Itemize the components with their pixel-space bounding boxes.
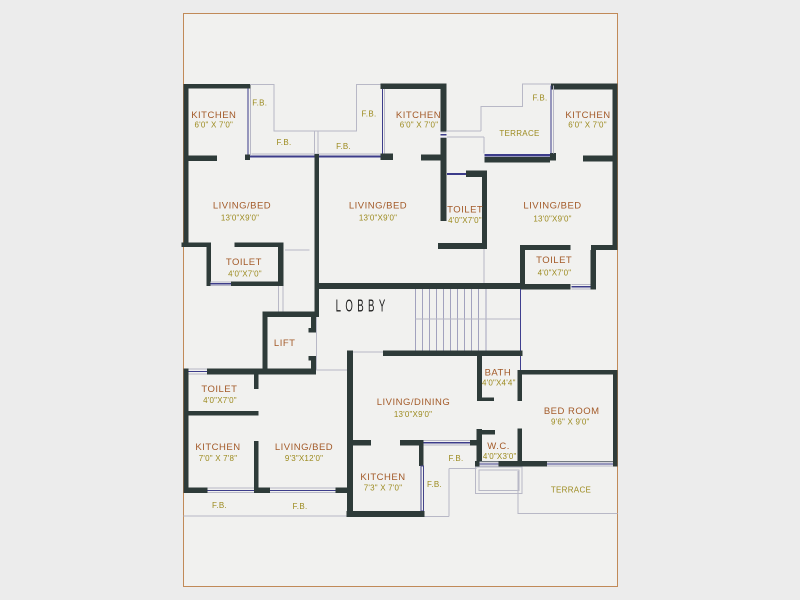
svg-text:13'0"X9'0": 13'0"X9'0"	[394, 410, 432, 419]
svg-text:KITCHEN: KITCHEN	[360, 472, 405, 483]
svg-text:TOILET: TOILET	[201, 384, 237, 395]
svg-text:TOILET: TOILET	[536, 255, 572, 266]
svg-text:6'0" X 7'0": 6'0" X 7'0"	[568, 121, 607, 130]
svg-text:9'6" X 9'0": 9'6" X 9'0"	[551, 417, 590, 426]
svg-text:13'0"X9'0": 13'0"X9'0"	[359, 214, 397, 223]
svg-text:F.B.: F.B.	[533, 94, 548, 103]
svg-text:4'0"X3'0": 4'0"X3'0"	[483, 452, 517, 461]
svg-text:F.B.: F.B.	[277, 138, 292, 147]
svg-text:TOILET: TOILET	[447, 204, 483, 215]
svg-text:13'0"X9'0": 13'0"X9'0"	[533, 215, 571, 224]
svg-text:4'0"X7'0": 4'0"X7'0"	[203, 396, 237, 405]
svg-text:4'0"X7'0": 4'0"X7'0"	[448, 216, 482, 225]
svg-text:LIVING/BED: LIVING/BED	[349, 200, 407, 211]
svg-text:BATH: BATH	[485, 368, 512, 379]
svg-text:W.C.: W.C.	[487, 441, 510, 452]
svg-text:TERRACE: TERRACE	[551, 486, 591, 495]
svg-text:4'0"X7'0": 4'0"X7'0"	[228, 270, 262, 279]
svg-text:LIVING/BED: LIVING/BED	[213, 200, 271, 211]
svg-text:F.B.: F.B.	[449, 454, 464, 463]
svg-text:F.B.: F.B.	[362, 109, 377, 118]
svg-text:LIFT: LIFT	[274, 338, 296, 349]
svg-text:4'0"X7'0": 4'0"X7'0"	[538, 268, 572, 277]
svg-text:9'3"X12'0": 9'3"X12'0"	[285, 454, 323, 463]
svg-text:BED ROOM: BED ROOM	[544, 406, 600, 417]
svg-text:13'0"X9'0": 13'0"X9'0"	[221, 214, 259, 223]
svg-text:LOBBY: LOBBY	[336, 295, 390, 315]
svg-text:KITCHEN: KITCHEN	[195, 442, 240, 453]
svg-text:6'0" X 7'0": 6'0" X 7'0"	[195, 120, 234, 129]
svg-text:LIVING/BED: LIVING/BED	[275, 442, 333, 453]
svg-text:F.B.: F.B.	[336, 142, 351, 151]
svg-text:F.B.: F.B.	[212, 501, 227, 510]
svg-text:LIVING/BED: LIVING/BED	[523, 200, 581, 211]
svg-text:LIVING/DINING: LIVING/DINING	[377, 397, 451, 408]
svg-text:TERRACE: TERRACE	[499, 129, 539, 138]
svg-text:F.B.: F.B.	[427, 480, 442, 489]
svg-text:F.B.: F.B.	[293, 502, 308, 511]
svg-text:4'0"X4'4": 4'0"X4'4"	[482, 379, 516, 388]
svg-text:KITCHEN: KITCHEN	[565, 110, 610, 121]
svg-text:TOILET: TOILET	[226, 257, 262, 268]
svg-text:7'0" X 7'8": 7'0" X 7'8"	[199, 454, 238, 463]
svg-text:6'0" X 7'0": 6'0" X 7'0"	[400, 120, 439, 129]
svg-text:F.B.: F.B.	[252, 99, 267, 108]
svg-text:7'3" X 7'0": 7'3" X 7'0"	[364, 483, 403, 492]
